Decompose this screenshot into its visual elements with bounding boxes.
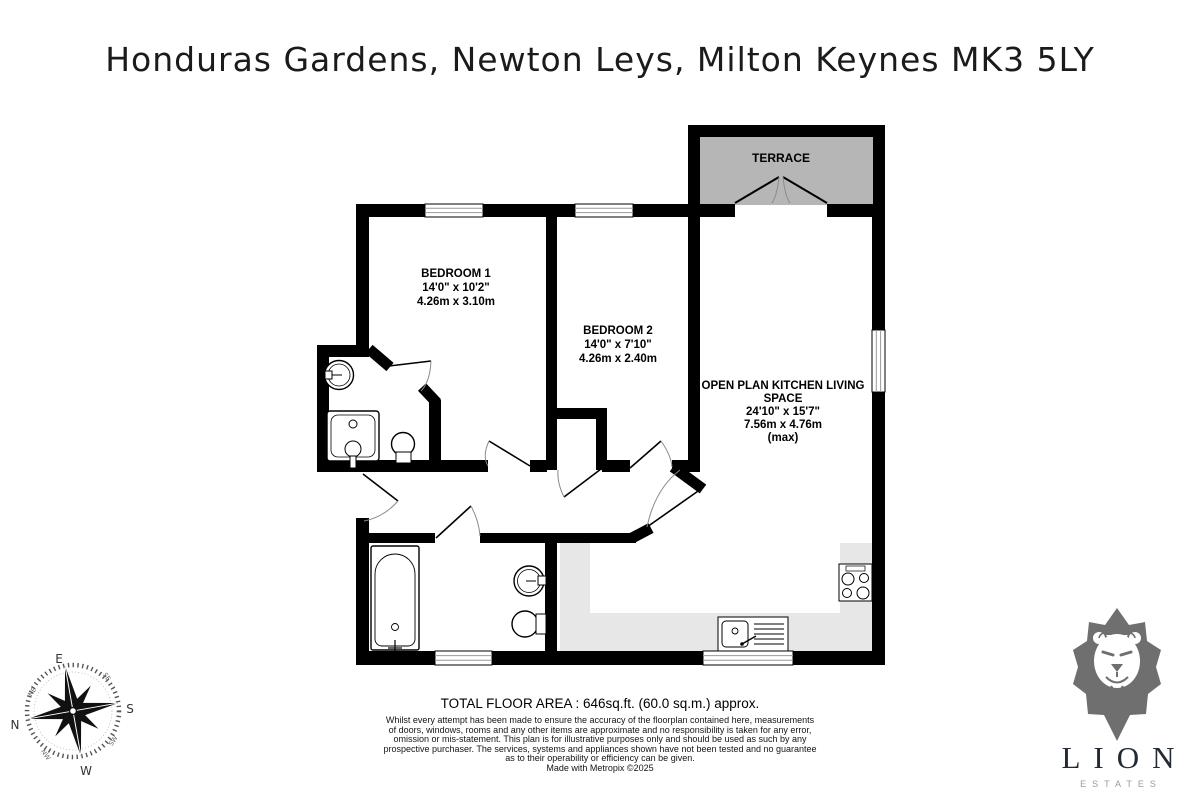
floorplan-drawing: TERRACE — [0, 0, 1200, 788]
compass-rose-icon: E S W N NE SE SW NW — [11, 652, 134, 778]
bathroom-basin-icon — [514, 566, 546, 596]
svg-text:4.26m x 3.10m: 4.26m x 3.10m — [417, 296, 495, 308]
compass-n: N — [11, 718, 20, 732]
compass-se: SE — [101, 671, 112, 682]
terrace-area: TERRACE — [688, 125, 885, 205]
lion-estates-logo: LION ESTATES — [1038, 600, 1198, 788]
ensuite-toilet-icon — [392, 433, 415, 464]
living-label: OPEN PLAN KITCHEN LIVING SPACE 24'10" x … — [702, 380, 865, 444]
door-hall-cupboard — [558, 469, 601, 497]
floorplan-page: Honduras Gardens, Newton Leys, Milton Ke… — [0, 0, 1200, 788]
svg-text:4.26m x 2.40m: 4.26m x 2.40m — [579, 353, 657, 365]
windows — [425, 204, 885, 665]
svg-text:7.56m x 4.76m: 7.56m x 4.76m — [744, 419, 822, 431]
bedroom2-label: BEDROOM 2 14'0" x 7'10" 4.26m x 2.40m — [579, 325, 657, 365]
hob-icon — [839, 564, 872, 601]
ensuite-basin-icon — [325, 361, 354, 390]
ensuite-shower-icon — [327, 411, 379, 468]
bedroom1-label: BEDROOM 1 14'0" x 10'2" 4.26m x 3.10m — [417, 268, 495, 308]
door-ensuite — [389, 361, 431, 391]
compass-w: W — [80, 764, 92, 778]
svg-text:OPEN PLAN KITCHEN LIVING: OPEN PLAN KITCHEN LIVING — [702, 380, 865, 392]
svg-text:(max): (max) — [768, 432, 799, 444]
logo-tagline: ESTATES — [1038, 779, 1198, 788]
logo-name: LION — [1038, 740, 1198, 776]
room-labels: BEDROOM 1 14'0" x 10'2" 4.26m x 3.10m BE… — [417, 268, 865, 444]
svg-text:SPACE: SPACE — [764, 393, 803, 405]
svg-text:BEDROOM 2: BEDROOM 2 — [583, 325, 653, 337]
bathtub-icon — [371, 546, 419, 652]
compass-e: E — [55, 652, 63, 666]
total-floor-area: TOTAL FLOOR AREA : 646sq.ft. (60.0 sq.m.… — [300, 696, 900, 711]
svg-text:BEDROOM 1: BEDROOM 1 — [421, 268, 491, 280]
door-bedroom1 — [485, 441, 530, 466]
door-entrance — [363, 474, 398, 521]
window-kitchen — [703, 651, 793, 665]
kitchen-sink-icon — [718, 617, 788, 651]
svg-text:14'0" x 10'2": 14'0" x 10'2" — [422, 282, 490, 294]
door-bathroom — [436, 506, 480, 538]
kitchen-counter — [560, 543, 872, 651]
compass-s: S — [126, 702, 134, 716]
bathroom-toilet-icon — [512, 611, 546, 637]
svg-text:24'10" x 15'7": 24'10" x 15'7" — [746, 406, 820, 418]
window-bathroom — [435, 651, 492, 665]
terrace-label: TERRACE — [752, 151, 810, 165]
window-living — [872, 330, 885, 392]
footer: TOTAL FLOOR AREA : 646sq.ft. (60.0 sq.m.… — [300, 696, 900, 774]
svg-text:14'0" x 7'10": 14'0" x 7'10" — [584, 339, 652, 351]
door-bedroom2 — [630, 441, 672, 468]
compass-sw: SW — [107, 734, 120, 748]
window-bedroom2 — [575, 204, 633, 217]
window-bedroom1 — [425, 204, 483, 217]
metropix-credit: Made with Metropix ©2025 — [300, 764, 900, 774]
